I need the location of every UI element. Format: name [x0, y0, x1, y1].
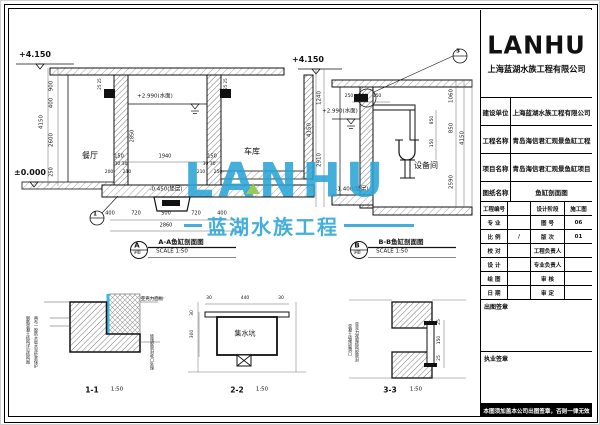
detail-bubble-number: 3	[456, 49, 460, 55]
section-b-drawing	[298, 49, 472, 259]
title-block-logo-box: LANHU 上海蓝湖水族工程有限公司	[481, 10, 592, 98]
small-label: 版 次	[531, 230, 565, 243]
dim-label: 详图	[134, 251, 141, 255]
dim-label: 1240	[317, 91, 323, 105]
small-label: 设 计	[481, 258, 508, 271]
section-scale: SCALE 1:50	[156, 249, 188, 255]
info-label: 项目名称	[481, 154, 511, 181]
dim-label: 4150	[307, 123, 313, 137]
dim-label: 30	[206, 297, 212, 302]
info-value: 青岛海信君汇观景鱼缸工程	[511, 126, 592, 153]
small-label: 专 业	[481, 216, 508, 229]
dim-label: 150	[373, 95, 382, 100]
dim-label: 400	[105, 212, 115, 217]
dim-label: 25	[438, 355, 443, 361]
dim-label: 500	[161, 212, 171, 217]
dim-label: 150	[431, 139, 436, 148]
dim-label: 300	[191, 330, 196, 339]
dim-label: 250	[345, 95, 354, 100]
water-level-label: +2.990(水面)	[137, 94, 173, 100]
dim-label: 30 30	[115, 163, 128, 168]
section-scale: SCALE 1:50	[376, 249, 408, 255]
dim-label: 2860	[160, 224, 173, 229]
material-note: 钢筋混凝土结构详见结构图	[26, 316, 30, 364]
small-value	[565, 272, 592, 285]
small-row-3: 校 对 工程负责人	[481, 244, 592, 258]
practice-stamp-box: 执业签章	[481, 352, 592, 404]
small-label: 日 期	[481, 286, 508, 299]
level-mark: -1.400(垫层)	[335, 187, 368, 193]
info-row-drawing-name: 图纸名称 鱼缸剖面图	[481, 182, 592, 202]
info-row-project: 工程名称 青岛海信君汇观景鱼缸工程	[481, 126, 592, 154]
small-value: 01	[565, 230, 592, 243]
section-bubble-letter: A	[134, 243, 139, 250]
small-row-0: 工程编号 设计阶段 施工图	[481, 202, 592, 216]
info-value: 青岛海信君汇观景鱼缸项目	[511, 154, 592, 181]
material-note: 混凝土墙预留洞口	[348, 324, 352, 356]
small-value	[508, 202, 531, 215]
small-value	[508, 286, 531, 299]
detail-title: 1-1	[85, 386, 99, 394]
room-label: 车库	[244, 148, 260, 156]
small-row-1: 专 业 图 号 06	[481, 216, 592, 230]
section-bubble-letter: B	[354, 243, 359, 250]
title-block: LANHU 上海蓝湖水族工程有限公司 建设单位 上海蓝湖水族工程有限公司 工程名…	[480, 10, 592, 417]
small-value	[565, 286, 592, 299]
level-mark: +4.150	[19, 51, 51, 59]
small-value	[508, 258, 531, 271]
detail-scale: 1:50	[256, 387, 268, 393]
level-mark: +4.150	[292, 56, 324, 64]
company-name: 上海蓝湖水族工程有限公司	[488, 63, 586, 75]
dim-label: 210	[197, 171, 206, 176]
dim-label: 150	[207, 155, 217, 160]
dim-label: 4150	[39, 115, 45, 129]
dim-label: 900	[49, 81, 55, 92]
detail-title: 2-2	[230, 386, 244, 394]
drawing-stamp-box: 出图签章	[481, 300, 592, 352]
dim-label: 30	[278, 297, 284, 302]
small-row-6: 日 期 审 定	[481, 286, 592, 300]
water-level-label: +2.990(水面)	[322, 109, 358, 115]
detail-1-1-drawing	[44, 294, 164, 352]
dim-label: 4150	[460, 131, 466, 145]
level-mark: -0.450(垫层)	[149, 187, 182, 193]
info-row-owner: 建设单位 上海蓝湖水族工程有限公司	[481, 98, 592, 126]
small-label: 图 号	[531, 216, 565, 229]
material-label: 亚克力面板	[141, 298, 164, 303]
small-label: 工程负责人	[531, 244, 565, 257]
dim-label: 1940	[159, 155, 172, 160]
info-label: 图纸名称	[481, 182, 511, 201]
small-label: 审 定	[531, 286, 565, 299]
drawing-canvas	[10, 10, 480, 417]
small-label: 校 对	[481, 244, 508, 257]
dim-label: 250	[214, 171, 223, 176]
info-row-item: 项目名称 青岛海信君汇观景鱼缸项目	[481, 154, 592, 182]
detail-title: 3-3	[383, 386, 397, 394]
dim-label: 25	[438, 319, 443, 325]
material-note: 两布一胶防水层水泥砂浆保护	[34, 316, 38, 368]
small-value	[508, 244, 531, 257]
dim-label: 1060	[449, 89, 455, 103]
small-value	[565, 244, 592, 257]
material-note: 亚克力视窗结构胶密封	[355, 322, 359, 362]
info-label: 工程名称	[481, 126, 511, 153]
detail-bubble-number: 1	[93, 212, 97, 218]
dim-label: 25 25	[224, 78, 228, 89]
dim-label: 200	[105, 171, 114, 176]
small-row-5: 绘 图 审 核	[481, 272, 592, 286]
detail-3-3-drawing	[349, 300, 466, 378]
dim-label: 详图	[354, 251, 361, 255]
small-value	[508, 272, 531, 285]
company-logo: LANHU	[487, 32, 586, 57]
detail-scale: 1:50	[111, 387, 123, 393]
dim-label: 850	[431, 116, 436, 125]
dim-label: 2850	[131, 130, 136, 143]
detail-scale: 1:50	[410, 387, 422, 393]
sump-pit-label: 集水坑	[235, 331, 256, 338]
small-label: 专业负责人	[531, 258, 565, 271]
material-note: 玻璃胶密封收口处理	[150, 334, 154, 370]
small-label: 比 例	[481, 230, 508, 243]
room-label: 设备间	[414, 162, 438, 170]
dim-label: 720	[131, 212, 141, 217]
small-label: 设计阶段	[531, 202, 565, 215]
info-label: 建设单位	[481, 98, 511, 125]
dim-label: 500	[359, 95, 368, 100]
dim-label: 150	[114, 155, 124, 160]
dim-label: 25 25	[98, 78, 102, 89]
small-value: 施工图	[565, 202, 592, 215]
small-row-2: 比 例 / 版 次 01	[481, 230, 592, 244]
drawing-sheet-page: { "sheet": { "logo_text": "LANHU", "comp…	[0, 0, 600, 425]
small-value: /	[508, 230, 531, 243]
dim-label: 400	[49, 98, 55, 109]
dim-label: 30 30	[203, 163, 216, 168]
small-label: 审 核	[531, 272, 565, 285]
dim-label: 720	[191, 212, 201, 217]
dim-label: 150	[438, 336, 443, 345]
small-value	[565, 258, 592, 271]
small-label: 绘 图	[481, 272, 508, 285]
dim-label: 850	[449, 123, 455, 134]
dim-label: 2910	[317, 153, 323, 167]
section-title: B-B鱼缸剖面图	[378, 239, 423, 246]
small-row-4: 设 计 专业负责人	[481, 258, 592, 272]
info-value: 上海蓝湖水族工程有限公司	[511, 98, 592, 125]
dim-label: 250	[50, 167, 55, 177]
small-label: 工程编号	[481, 202, 508, 215]
section-title: A-A鱼缸剖面图	[158, 239, 203, 246]
room-label: 餐厅	[82, 152, 98, 160]
dim-label: 400	[217, 212, 227, 217]
level-mark: ±0.000	[14, 169, 46, 177]
dim-label: 210	[123, 171, 132, 176]
dim-label: 440	[241, 297, 250, 302]
footer-note: 本图须加盖本公司出图签章，否则一律无效	[481, 404, 592, 417]
info-value: 鱼缸剖面图	[511, 182, 592, 201]
dim-label: 2590	[449, 175, 455, 189]
sheet-background: LANHU 蓝湖水族工程 LANHU 上海蓝湖水族工程有限公司 建设单位 上海蓝…	[1, 1, 599, 424]
small-value	[508, 216, 531, 229]
small-value: 06	[565, 216, 592, 229]
dim-label: 2600	[49, 133, 55, 147]
dim-label: 30	[191, 310, 196, 316]
